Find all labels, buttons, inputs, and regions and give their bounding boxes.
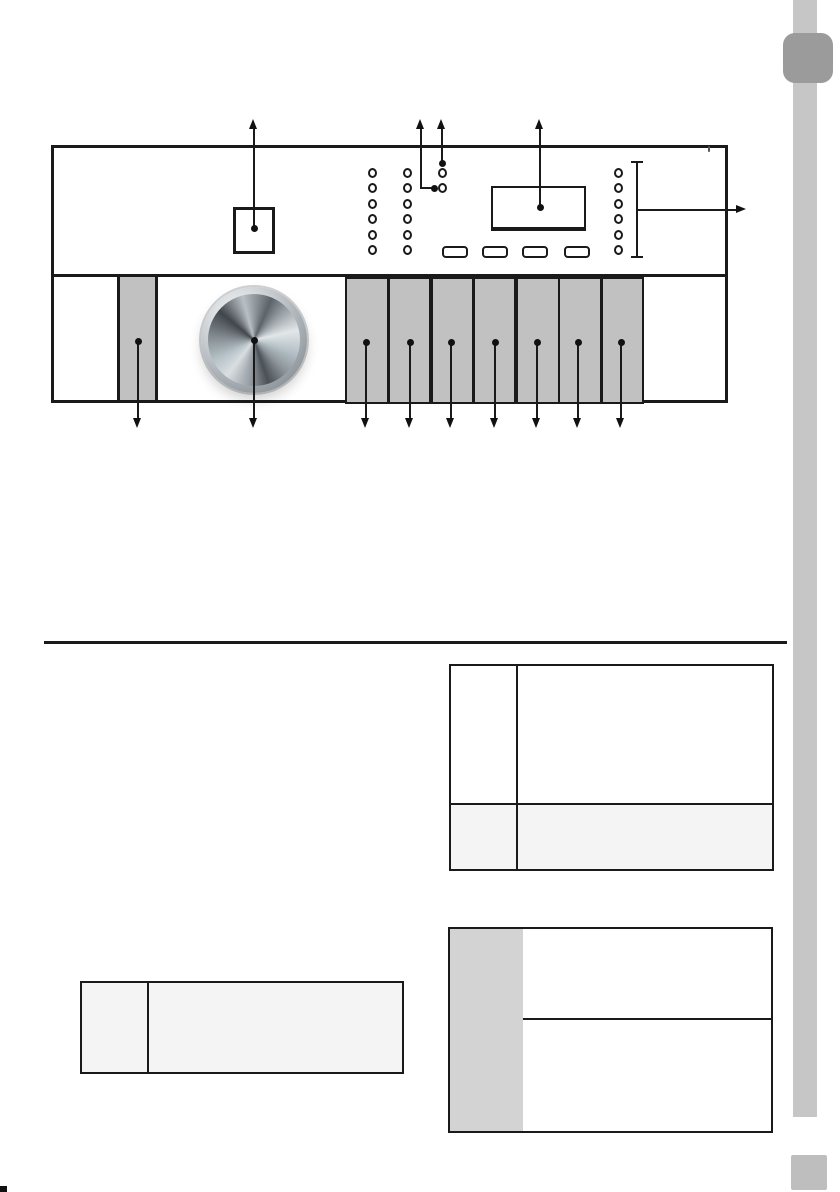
status-led-icon	[368, 199, 377, 209]
callout-line	[253, 127, 255, 228]
status-led-icon	[614, 183, 623, 193]
status-led-icon	[403, 230, 412, 240]
info-table-right-top	[449, 664, 774, 871]
arrow-down-icon	[446, 418, 454, 428]
arrow-down-icon	[405, 418, 413, 428]
manual-page	[0, 0, 840, 1192]
status-led-icon	[438, 168, 447, 178]
touch-key-icon	[564, 246, 590, 258]
page-number-block	[791, 1155, 827, 1190]
table-row-divider	[451, 803, 772, 805]
arrow-down-icon	[133, 418, 141, 428]
callout-dot	[251, 225, 258, 232]
status-led-icon	[403, 214, 412, 224]
arrow-right-icon	[736, 205, 746, 213]
print-artifact	[708, 146, 710, 152]
status-led-icon	[403, 168, 412, 178]
callout-dot	[431, 185, 438, 192]
status-led-icon	[368, 245, 377, 255]
table-row-divider	[523, 1018, 771, 1020]
table-header-column	[450, 929, 523, 1131]
table-row	[451, 803, 772, 869]
callout-dot	[492, 339, 499, 346]
touch-key-icon	[442, 246, 468, 258]
callout-line	[420, 127, 422, 188]
callout-line	[577, 342, 579, 420]
status-led-icon	[614, 168, 623, 178]
arrow-down-icon	[490, 418, 498, 428]
arrow-down-icon	[532, 418, 540, 428]
callout-line	[450, 342, 452, 420]
status-led-icon	[614, 245, 623, 255]
status-led-icon	[368, 230, 377, 240]
callout-dot	[618, 339, 625, 346]
corner-print-artifact	[0, 1186, 7, 1192]
chapter-tab-marker	[783, 33, 833, 83]
table-col-divider	[147, 983, 149, 1072]
status-led-icon	[368, 183, 377, 193]
arrow-down-icon	[249, 418, 257, 428]
callout-line	[441, 127, 443, 163]
callout-line	[536, 342, 538, 420]
callout-line	[539, 127, 541, 207]
arrow-up-icon	[416, 119, 424, 129]
callout-line	[137, 341, 139, 420]
status-led-icon	[614, 199, 623, 209]
callout-dot	[251, 337, 258, 344]
status-led-icon	[614, 230, 623, 240]
callout-dot	[439, 160, 446, 167]
status-led-icon	[368, 168, 377, 178]
arrow-up-icon	[437, 119, 445, 129]
callout-dot	[537, 204, 544, 211]
callout-dot	[407, 339, 414, 346]
callout-bracket-cap	[631, 256, 643, 258]
arrow-down-icon	[616, 418, 624, 428]
page-side-rail	[793, 0, 817, 1117]
status-led-icon	[403, 183, 412, 193]
callout-line	[409, 342, 411, 420]
status-led-icon	[438, 183, 447, 193]
touch-key-icon	[482, 246, 508, 258]
callout-dot	[575, 339, 582, 346]
section-divider-rule	[44, 641, 787, 644]
arrow-up-icon	[249, 119, 257, 129]
arrow-up-icon	[535, 119, 543, 129]
arrow-down-icon	[361, 418, 369, 428]
info-table-left	[80, 981, 404, 1074]
callout-line	[253, 340, 255, 420]
callout-line	[620, 342, 622, 420]
callout-dot	[448, 339, 455, 346]
status-led-icon	[614, 214, 623, 224]
status-led-icon	[403, 245, 412, 255]
touch-key-icon	[522, 246, 548, 258]
status-led-icon	[368, 214, 377, 224]
callout-line	[365, 342, 367, 420]
callout-line	[494, 342, 496, 420]
callout-dot	[534, 339, 541, 346]
callout-bracket-cap	[631, 161, 643, 163]
info-table-right-bottom	[448, 927, 773, 1133]
table-col-divider	[516, 666, 518, 869]
callout-dot	[363, 339, 370, 346]
callout-dot	[135, 338, 142, 345]
arrow-down-icon	[573, 418, 581, 428]
status-led-icon	[403, 199, 412, 209]
callout-line	[637, 209, 738, 211]
